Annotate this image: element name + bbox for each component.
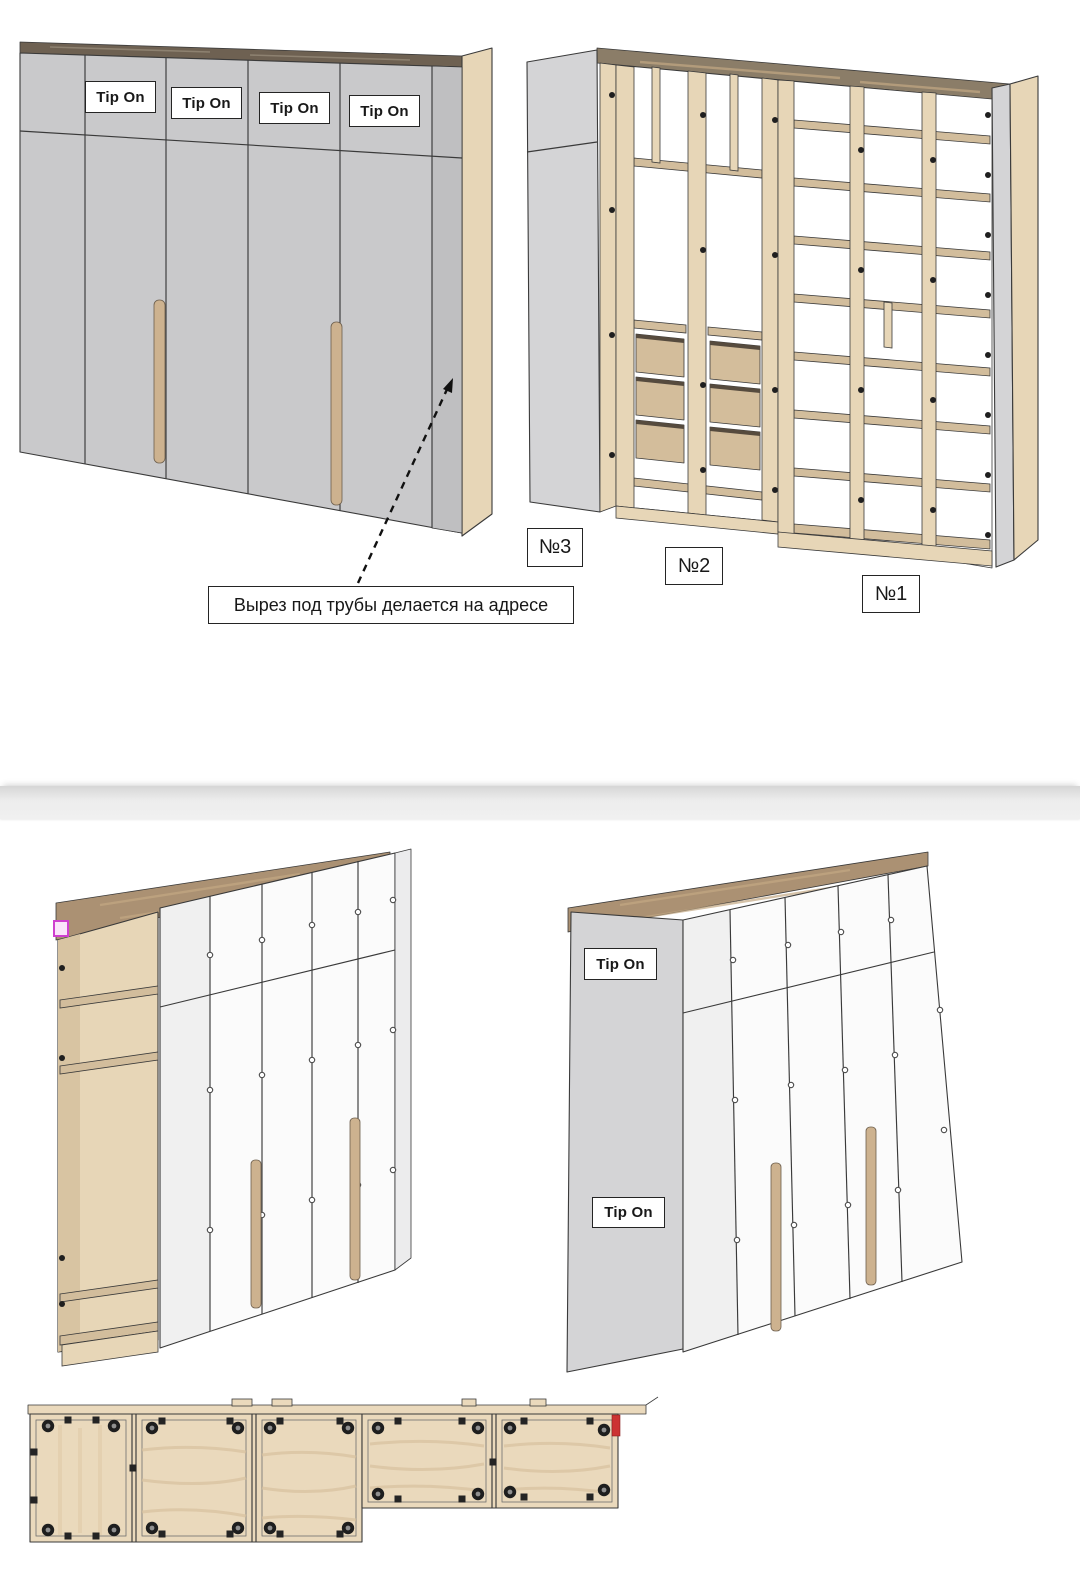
door-handle-groove bbox=[154, 300, 165, 463]
unit1-interior bbox=[778, 76, 1038, 568]
red-marker bbox=[612, 1415, 620, 1436]
tip-on-label-5: Tip On bbox=[584, 948, 657, 980]
unit3-side-wall bbox=[600, 63, 616, 512]
tip-on-label-1: Tip On bbox=[85, 81, 156, 113]
left-side-panel bbox=[527, 50, 600, 512]
left-side-panel bbox=[567, 912, 683, 1372]
drawer-stack bbox=[634, 320, 686, 463]
wardrobe-filler-strip bbox=[432, 66, 462, 533]
wardrobe-interior-view bbox=[527, 48, 1038, 568]
furniture-drawing-page: Tip On Tip On Tip On Tip On Вырез под тр… bbox=[0, 0, 1080, 1589]
wardrobe-side-panel bbox=[462, 48, 492, 536]
closed-wardrobe-front-view bbox=[20, 42, 492, 583]
door-handle-groove bbox=[251, 1160, 261, 1308]
door-handle-groove bbox=[350, 1118, 360, 1280]
right-edge-panel bbox=[395, 849, 411, 1270]
unit-label-1: №1 bbox=[862, 575, 920, 613]
right-side-panel bbox=[1010, 76, 1038, 560]
back-edge-strip bbox=[28, 1405, 646, 1414]
tip-on-label-6: Tip On bbox=[592, 1197, 665, 1228]
tip-on-label-2: Tip On bbox=[171, 87, 242, 119]
unit-label-2: №2 bbox=[665, 547, 723, 585]
wardrobe-drawings-canvas bbox=[0, 0, 1080, 1589]
pink-corner-marker bbox=[54, 921, 68, 936]
unit-label-3: №3 bbox=[527, 528, 583, 567]
door-handle-groove bbox=[866, 1127, 876, 1285]
door-handle-groove bbox=[771, 1163, 781, 1331]
unit2-interior bbox=[616, 65, 778, 534]
pipe-cutout-annotation: Вырез под трубы делается на адресе bbox=[208, 586, 574, 624]
tip-on-label-4: Tip On bbox=[349, 95, 420, 127]
wardrobe-plan-view bbox=[28, 1397, 658, 1542]
drawer-stack bbox=[708, 327, 762, 470]
open-shelf-section bbox=[58, 912, 158, 1366]
wardrobe-right-angle-view bbox=[567, 852, 962, 1372]
door-handle-groove bbox=[331, 322, 342, 505]
wardrobe-left-angle-view bbox=[54, 849, 411, 1366]
tip-on-label-3: Tip On bbox=[259, 92, 330, 124]
